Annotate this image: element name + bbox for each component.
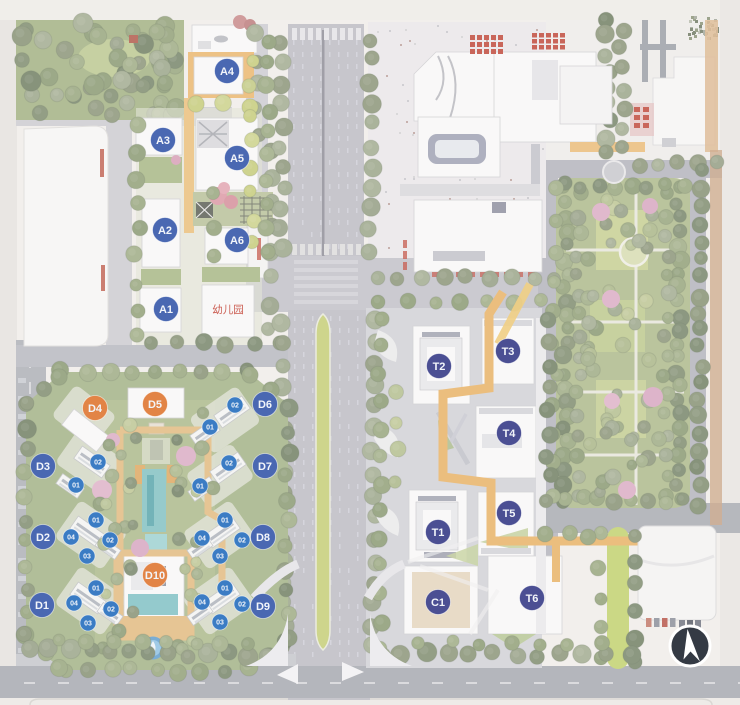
svg-text:D8: D8 — [256, 532, 270, 544]
svg-text:A6: A6 — [230, 235, 244, 247]
svg-text:A1: A1 — [159, 304, 173, 316]
svg-text:T2: T2 — [433, 361, 446, 373]
svg-text:02: 02 — [106, 538, 114, 545]
svg-text:T6: T6 — [526, 593, 539, 605]
svg-text:C1: C1 — [431, 597, 445, 609]
svg-text:01: 01 — [206, 425, 214, 432]
svg-text:02: 02 — [238, 602, 246, 609]
svg-text:02: 02 — [231, 403, 239, 410]
svg-text:01: 01 — [221, 586, 229, 593]
svg-text:01: 01 — [92, 518, 100, 525]
svg-text:02: 02 — [225, 461, 233, 468]
svg-text:A2: A2 — [158, 225, 172, 237]
svg-text:04: 04 — [70, 601, 78, 608]
svg-text:D10: D10 — [145, 570, 165, 582]
svg-text:02: 02 — [107, 607, 115, 614]
svg-text:A5: A5 — [230, 153, 244, 165]
svg-text:03: 03 — [216, 620, 224, 627]
svg-text:D3: D3 — [36, 461, 50, 473]
svg-text:D1: D1 — [35, 600, 49, 612]
svg-text:T4: T4 — [503, 428, 517, 440]
svg-text:A4: A4 — [220, 66, 235, 78]
svg-text:D7: D7 — [258, 461, 272, 473]
svg-text:03: 03 — [84, 621, 92, 628]
svg-text:04: 04 — [198, 536, 206, 543]
svg-text:02: 02 — [238, 538, 246, 545]
svg-text:03: 03 — [83, 554, 91, 561]
svg-text:01: 01 — [221, 518, 229, 525]
svg-text:04: 04 — [198, 600, 206, 607]
svg-text:A3: A3 — [156, 135, 170, 147]
svg-text:T5: T5 — [503, 508, 516, 520]
svg-text:D9: D9 — [256, 601, 270, 613]
svg-text:01: 01 — [72, 483, 80, 490]
svg-text:01: 01 — [196, 484, 204, 491]
svg-text:02: 02 — [94, 460, 102, 467]
svg-text:03: 03 — [216, 554, 224, 561]
svg-text:T1: T1 — [432, 527, 445, 539]
svg-text:D4: D4 — [88, 403, 103, 415]
svg-text:T3: T3 — [502, 346, 515, 358]
svg-text:01: 01 — [92, 586, 100, 593]
svg-text:D5: D5 — [148, 399, 162, 411]
svg-text:04: 04 — [67, 535, 75, 542]
svg-text:D6: D6 — [258, 399, 272, 411]
svg-text:D2: D2 — [36, 532, 50, 544]
